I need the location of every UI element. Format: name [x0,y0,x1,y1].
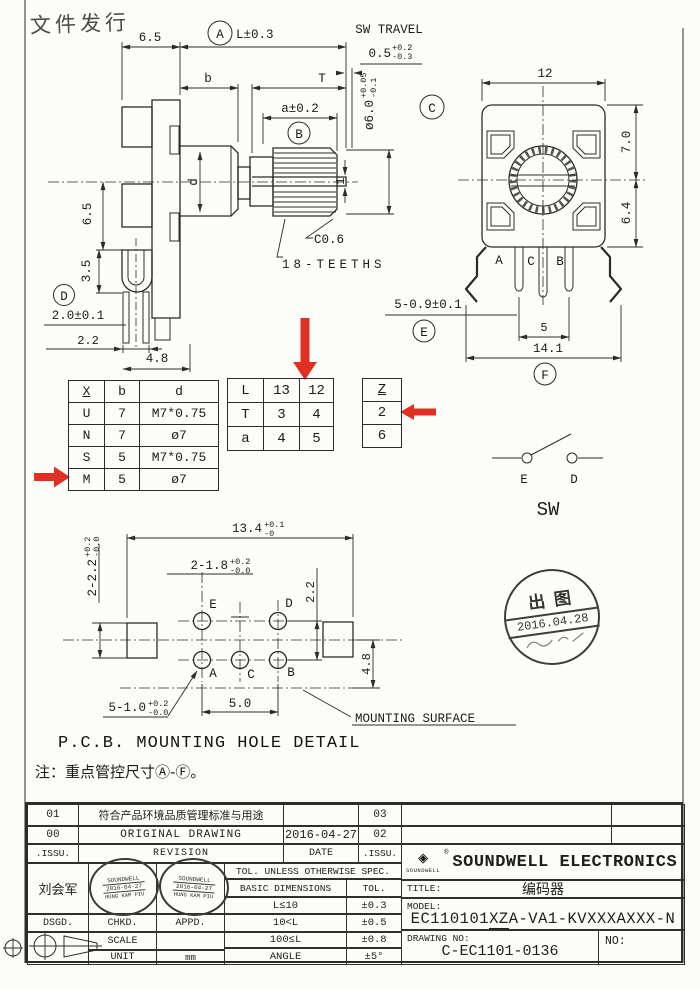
red-arrow-left [400,404,436,420]
dim-4-8-pcb: 4.8 [360,653,374,675]
tol-range-4: ANGLE [224,948,347,965]
svg-text:-0.3: -0.3 [392,52,412,62]
logo-diamond-icon: ◈ [418,851,428,868]
pin-label-b: B [556,255,564,269]
dim-d: d [187,178,201,186]
pin-label-a: A [495,254,503,268]
mounting-surface-label: MOUNTING SURFACE [355,712,475,726]
unit-label: UNIT [88,950,157,965]
dim-b: b [204,72,212,86]
rev-header-issu2: .ISSU. [358,844,402,863]
rev1-description2 [401,804,612,826]
designer-name: 刘会军 [27,863,89,914]
table-row: U7M7*0.75 [69,403,219,425]
scale-label: SCALE [88,932,157,950]
dsgd-label: DSGD. [27,914,89,932]
sw-label: SW [537,499,560,521]
title-label: TITLE: [407,883,441,894]
balloon-e-letter: E [420,326,428,340]
balloon-c-letter: C [428,102,436,116]
dim-6-5-left: 6.5 [81,203,95,226]
dim-pin-dia: 5-0.9±0.1 [394,298,462,312]
logo-word: SOUNDWELL [406,868,440,874]
table-row: L1312 [228,379,334,403]
document-release-stamp: 文件发行 [30,6,131,39]
hole-label-d: D [285,597,293,611]
tol-value-1: ±0.3 [346,897,402,914]
terminal-pins [515,247,573,297]
rev2-issu: 00 [27,826,79,844]
dim-7-0: 7.0 [620,131,634,154]
svg-text:-0.1: -0.1 [369,78,379,98]
drawing-number: C-EC1101-0136 [441,943,558,960]
dim-2-2: 2.2 [77,334,99,348]
dim-T: T [318,72,326,86]
tol-col1-header: BASIC DIMENSIONS [224,879,347,897]
rev2-issu2: 02 [358,826,402,844]
drawing-no-cell: DRAWING NO: C-EC1101-0136 [401,930,599,965]
scale-value [156,932,225,950]
dim-2-0: 2.0±0.1 [52,309,105,323]
col-header-z: Z [363,379,402,402]
table-row: N7ø7 [69,425,219,447]
model-label: MODEL: [407,901,441,912]
rev-header-issu: .ISSU. [27,844,79,863]
teeth-label: 18-TEETHS [282,258,386,272]
dim-13-4: 13.4 [232,522,262,536]
tol-range-2: 10<L [224,914,347,932]
svg-text:2-2.2: 2-2.2 [86,559,100,597]
dim-chamfer: C0.6 [314,233,344,247]
table-z-options: Z 2 6 [362,378,402,448]
pcb-slot-left [127,623,157,658]
svg-text:+0.05: +0.05 [359,72,369,98]
dim-3-5: 3.5 [80,260,94,283]
table-row: 6 [363,425,402,448]
right-mount-leg [601,247,621,302]
tol-col2-header: TOL. [346,879,402,897]
balloon-a-letter: A [216,28,224,42]
shaft-slot [252,177,346,186]
no-label: NO: [605,935,626,948]
rev1-date [283,804,359,826]
table-length-options: L1312 T34 a45 [227,378,334,451]
unit-value: mm [156,950,225,965]
appd-label: APPD. [156,914,225,932]
dim-6-5-top: 6.5 [139,31,162,45]
rev1-issu: 01 [27,804,79,826]
hole-label-a: A [209,667,217,681]
chkd-label: CHKD. [88,914,157,932]
sw-terminal-e: E [520,473,528,487]
table-row: a45 [228,427,334,451]
dim-14-1: 14.1 [533,342,563,356]
drawing-no-label: DRAWING NO: [407,933,470,944]
svg-text:-0.0: -0.0 [148,708,168,718]
rev2-date: 2016-04-27 [283,826,359,844]
company-name: SOUNDWELL ELECTRONICS [452,853,677,872]
pin-label-c: C [527,255,535,269]
hole-label-e: E [209,598,217,612]
tol-range-3: 100≤L [224,932,347,948]
rev2-description2 [401,826,612,844]
rev1-description: 符合产品环境品质管理标准与用途 [78,804,284,826]
dim-4-8: 4.8 [146,352,169,366]
dim-5-1-0: 5-1.0 [108,701,146,715]
table-row: S5M7*0.75 [69,447,219,469]
rev2-description: ORIGINAL DRAWING [78,826,284,844]
rev-header-date: DATE [283,844,359,863]
red-arrow-right [34,467,70,488]
svg-text:ø6.0: ø6.0 [363,100,377,130]
dim-2-2-pitch: 2.2 [304,581,318,603]
rev1-date2 [611,804,685,826]
registration-mark [3,938,23,958]
svg-text:-0.0: -0.0 [230,566,250,576]
projection-symbol-cell [27,932,89,965]
left-mount-leg [466,247,486,302]
drawing-title: 编码器 [522,880,564,898]
balloon-f-letter: F [541,369,549,383]
soundwell-logo: ◈ SOUNDWELL [406,851,440,874]
table-shaft-options: X b d U7M7*0.75 N7ø7 S5M7*0.75 M5ø7 [68,380,219,491]
engineering-drawing-sheet: 6.5 A L±0.3 b T a±0.2 B SW TRAVEL 0.5 +0… [0,0,700,990]
dim-shaft-dia: ø6.0 +0.05 -0.1 [359,72,379,130]
company-header: ◈ SOUNDWELL ® SOUNDWELL ELECTRONICS [401,844,685,880]
col-header-d: d [140,381,219,403]
col-header-b: b [105,381,140,403]
rev1-issu2: 03 [358,804,402,826]
tol-value-3: ±0.8 [346,932,402,948]
hole-label-c: C [247,668,255,682]
rev2-date2 [611,826,685,844]
dim-2-1-8: 2-1.8 [190,559,228,573]
dim-slot: 1 [334,177,348,184]
sw-travel-label: SW TRAVEL [355,23,423,37]
table-row: M5ø7 [69,469,219,491]
tol-value-2: ±0.5 [346,914,402,932]
tol-range-1: L≤10 [224,897,347,914]
model-row: MODEL: EC110101XZA-VA1-KVXXXAXXX-N [401,898,685,930]
pcb-detail: E D A C B 13.4 +0.1 -0 2-1.8 +0.2 -0.0 2… [63,520,516,726]
table-row: 2 [363,402,402,425]
sw-travel-value: 0.5 [368,47,391,61]
sw-switch-symbol: E D SW [492,434,603,521]
pcb-detail-title: P.C.B. MOUNTING HOLE DETAIL [58,734,360,753]
control-dimensions-note: 注：重点管控尺寸Ⓐ-Ⓕ。 [35,761,205,782]
solder-lug [122,250,152,292]
dim-a: a±0.2 [281,102,319,116]
model-number: EC110101XZA-VA1-KVXXXAXXX-N [411,910,676,928]
no-cell: NO: [598,930,685,965]
col-header-x: X [69,381,105,403]
table-row: T34 [228,403,334,427]
side-view-body [122,100,346,343]
registered-trademark-icon: ® [444,849,448,857]
svg-text:-0.0: -0.0 [92,537,102,557]
side-view-dimensions: 6.5 A L±0.3 b T a±0.2 B SW TRAVEL 0.5 +0… [44,21,444,372]
title-row: TITLE: 编码器 [401,880,685,898]
dim-6-4: 6.4 [620,202,634,225]
front-view: A C B 12 7.0 6.4 5-0.9±0.1 E 5 14.1 F [385,67,648,385]
dim-12: 12 [537,67,552,81]
tol-header: TOL. UNLESS OTHERWISE SPEC. [224,863,402,879]
side-view: 6.5 A L±0.3 b T a±0.2 B SW TRAVEL 0.5 +0… [44,21,444,372]
bushing [250,157,273,206]
sw-terminal-d: D [570,473,578,487]
hole-label-b: B [287,666,295,680]
balloon-d-letter: D [60,290,68,304]
pcb-slot-right [323,622,353,657]
red-arrow-down [293,318,317,380]
dim-L: L±0.3 [236,28,274,42]
tol-value-4: ±5° [346,948,402,965]
dim-5-0: 5.0 [229,697,252,711]
dim-5: 5 [540,321,547,335]
balloon-b-letter: B [295,128,303,142]
svg-text:-0: -0 [264,529,274,539]
